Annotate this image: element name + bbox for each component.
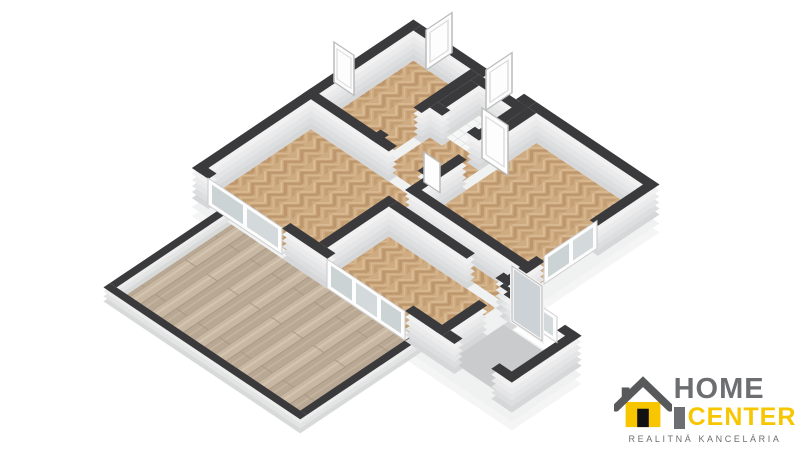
agency-logo: HOME CENTER REALITNÁ KANCELÁRIA [620, 372, 790, 444]
logo-wordmark: HOME CENTER [614, 372, 797, 430]
house-chimney [621, 387, 629, 400]
logo-tagline: REALITNÁ KANCELÁRIA [629, 434, 782, 444]
logo-gray-square [674, 407, 685, 429]
house-door [637, 409, 649, 427]
logo-text-center-row: CENTER [674, 405, 797, 430]
logo-text-center: CENTER [688, 405, 797, 430]
floorplan-screenshot: HOME CENTER REALITNÁ KANCELÁRIA [0, 0, 800, 450]
logo-text-home: HOME [674, 375, 797, 404]
home-center-house-icon [614, 372, 672, 430]
